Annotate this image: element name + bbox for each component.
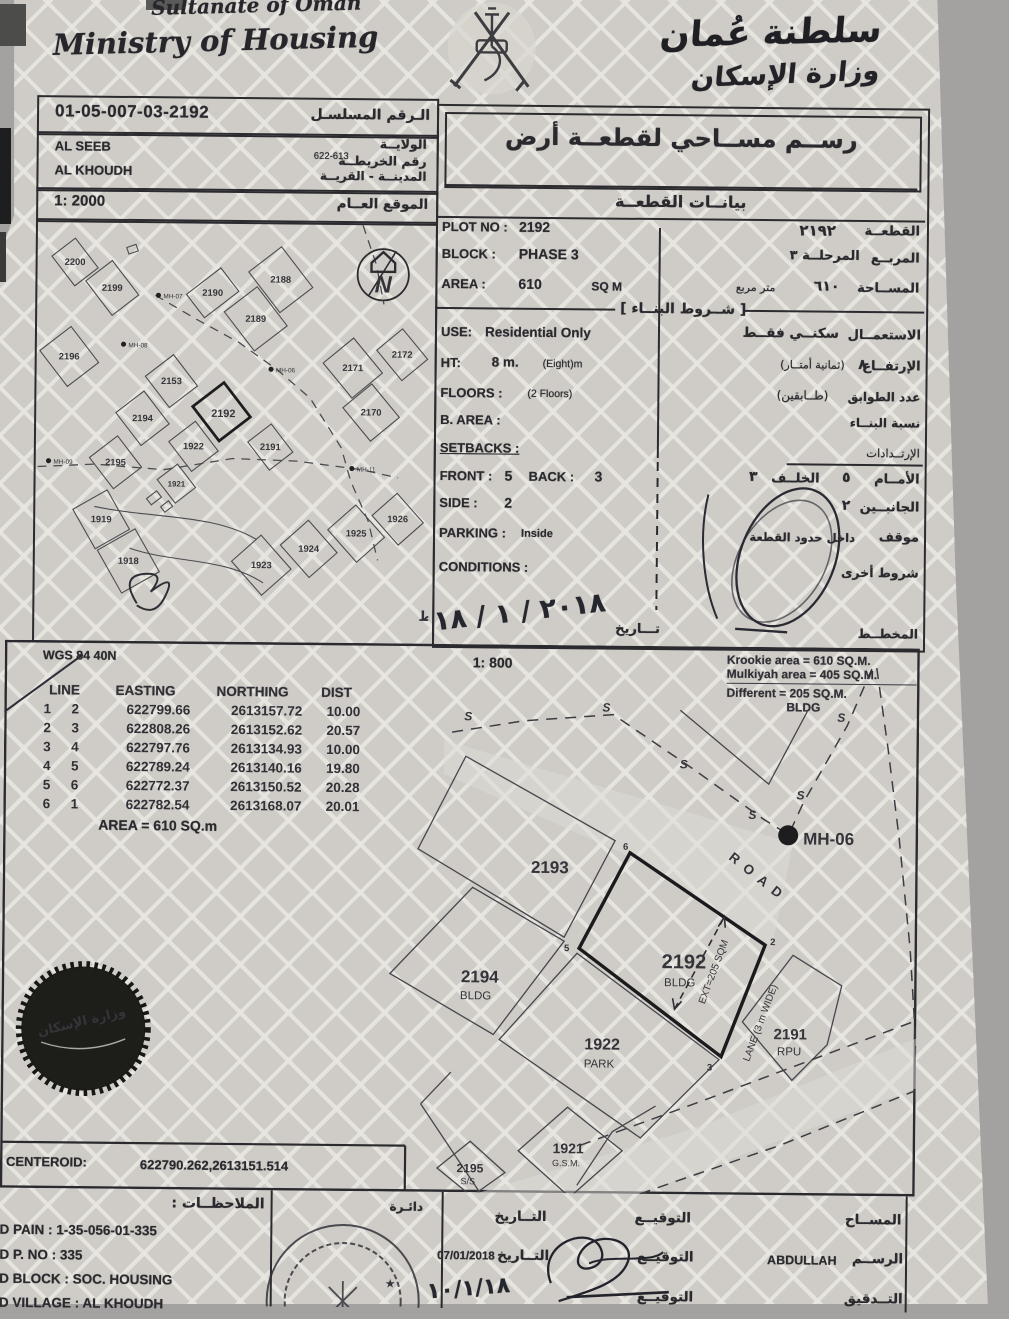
- height-label-ar: الإرتفــاع: [862, 359, 921, 375]
- use-value: Residential Only: [485, 324, 591, 340]
- plot-label: 2199: [102, 283, 123, 293]
- drafter-name: ABDULLAH: [767, 1253, 837, 1268]
- plot-use-label: RPU: [777, 1046, 801, 1058]
- plot-label: 2196: [59, 351, 80, 361]
- map-number-label: رقم الخريطــة: [338, 153, 426, 169]
- survey-scale: 1: 800: [473, 654, 513, 670]
- table-row: 61622782.542613168.0720.01: [33, 794, 363, 816]
- plot-label: 2188: [270, 275, 291, 285]
- manhole-dot: [121, 342, 126, 347]
- manhole-label: MH-11: [357, 467, 376, 474]
- block-label-ar: المربــع: [871, 251, 920, 266]
- front-label-ar: الأمــام: [874, 472, 920, 487]
- back-value: 3: [595, 468, 603, 484]
- header-country-arabic: سلطنة عُمان: [624, 9, 918, 56]
- handwritten-mark: [129, 574, 169, 611]
- area-label: AREA :: [441, 276, 485, 291]
- plot-label: 2194: [461, 967, 500, 986]
- plot-no-label: PLOT NO :: [442, 219, 508, 235]
- mulkiyah-area: Mulkiyah area = 405 SQ.M.: [727, 667, 917, 686]
- stamp-star-icon: ★: [385, 1276, 396, 1290]
- manhole-label: MH-07: [163, 293, 183, 300]
- vertex-label: 2: [770, 937, 775, 948]
- survey-panel: 2193 2192 2194 1922 2191 1921 2195 BLDG …: [0, 640, 920, 1197]
- notes-header: الملاحظــات :: [140, 1195, 265, 1212]
- sewer-mark: S: [464, 709, 472, 723]
- floors-value: (2 Floors): [527, 388, 572, 400]
- coordinate-table: LINE EASTING NORTHING DIST 12622799.6626…: [33, 680, 364, 835]
- plot-use-label: G.S.M.: [552, 1158, 580, 1168]
- village-value: AL KHOUDH: [54, 162, 132, 178]
- plot-label-highlight: 2192: [662, 951, 707, 973]
- handwritten-check-date: ١٠/١/١٨: [426, 1273, 511, 1304]
- floors-value-ar: (طــابقين): [777, 388, 829, 402]
- header-ministry: Ministry of Housing: [52, 20, 378, 62]
- back-label: BACK :: [529, 469, 575, 484]
- surveyor-role: المســاح: [839, 1212, 901, 1229]
- plot-label: 2200: [65, 257, 86, 267]
- floors-label: FLOORS :: [440, 385, 502, 401]
- plot-no-value: 2192: [519, 219, 550, 235]
- area-unit-ar: متر مربع: [736, 281, 776, 294]
- plot-label: 2191: [773, 1026, 807, 1043]
- side-value: 2: [504, 495, 512, 511]
- vertex-label: 3: [707, 1063, 712, 1074]
- note-line: LD VILLAGE : AL KHOUDH: [0, 1295, 163, 1312]
- parking-label: PARKING :: [439, 525, 506, 541]
- plot-label: 1922: [584, 1036, 620, 1053]
- front-label: FRONT :: [440, 468, 493, 484]
- plot-label: 2170: [361, 407, 382, 417]
- plot-value-ar: ٢١٩٢: [799, 221, 836, 239]
- centeroid-value: 622790.262,2613151.514: [140, 1157, 288, 1173]
- plot-label: 1922: [183, 441, 204, 451]
- manhole-label: MH-09: [53, 459, 73, 466]
- area-summary: Krookie area = 610 SQ.M. Mulkiyah area =…: [726, 653, 917, 716]
- oman-emblem: [432, 2, 551, 97]
- plot-use-label: BLDG: [460, 990, 491, 1002]
- area-label-ar: المســاحة: [857, 281, 919, 297]
- plot-use-label: BLDG: [664, 977, 695, 989]
- block-value: PHASE 3: [519, 246, 579, 263]
- date-word: تـــاريخ: [615, 622, 660, 637]
- stamp-emblem-icon: [329, 1281, 357, 1308]
- plot-label: 1925: [346, 528, 367, 538]
- plot-label: 2195: [105, 457, 126, 467]
- height-note-ar: (ثمانية أمتــار): [780, 358, 845, 372]
- height-label: HT:: [441, 355, 461, 370]
- height-value-ar: ٨: [858, 357, 867, 373]
- header-country: Sultanate of Oman: [151, 0, 362, 20]
- plot-label: 2191: [260, 442, 281, 452]
- plot-label: 1924: [298, 544, 320, 554]
- manhole-dot: [349, 466, 354, 471]
- plot-label: 1918: [118, 556, 139, 566]
- plot-label: 2190: [202, 288, 223, 298]
- general-location-label: الموقع العــام: [337, 196, 429, 213]
- svg-text:N: N: [375, 272, 393, 298]
- built-area-label-ar: نسبة البنــاء: [850, 416, 920, 431]
- manhole-dot: [156, 293, 161, 298]
- city-village-label: المدينــة - القريــة: [320, 169, 427, 184]
- sewer-mark: S: [796, 788, 804, 802]
- setbacks-label: SETBACKS :: [440, 440, 520, 456]
- header-ministry-arabic: وزارة الإسكان: [658, 54, 913, 96]
- signature-path: [548, 1237, 629, 1301]
- note-line: LD BLOCK : SOC. HOUSING: [0, 1271, 172, 1288]
- plot-label: 2172: [392, 350, 413, 360]
- bldg-note: BLDG: [726, 700, 916, 716]
- conditions-label: CONDITIONS :: [439, 559, 529, 575]
- wilayat-label: الولايــة: [380, 136, 427, 151]
- manhole-label: MH-06: [803, 829, 854, 848]
- plot-label: 1921: [168, 479, 186, 488]
- area-value-ar: ٦١٠: [814, 279, 840, 295]
- drafter-role: الرســم: [847, 1251, 903, 1268]
- north-symbol-icon: N: [357, 249, 409, 301]
- note-line: LD PAIN : 1-35-056-01-335: [0, 1222, 157, 1239]
- checker-role: التــدقيق: [837, 1291, 903, 1308]
- height-value: 8 m.: [492, 354, 519, 369]
- height-note: (Eight)m: [543, 358, 583, 370]
- plot-label: 1919: [91, 514, 112, 524]
- manhole-label: MH-08: [128, 342, 148, 349]
- location-map: MH-07 MH-08 MH-06 MH-09 MH-11 2200 2199 …: [34, 220, 432, 640]
- manhole-dot: [778, 825, 798, 845]
- plot-label: 1926: [387, 514, 408, 524]
- plot-label-ar: القطعــة: [864, 224, 920, 240]
- plot-label: 2153: [161, 376, 182, 386]
- plot-use-label: S/S: [461, 1176, 476, 1186]
- building-conditions-header: [ شــروط البنــاء ]: [598, 300, 768, 318]
- plot-label: 2171: [342, 363, 363, 373]
- scanned-survey-document: { "header": { "country": "Sultanate of O…: [0, 0, 1009, 1304]
- datum-label: WGS 84 40N: [43, 648, 117, 663]
- sewer-mark: S: [602, 701, 610, 715]
- area-unit: SQ M: [591, 279, 622, 293]
- lane-label: LANE (3 m WIDE): [742, 983, 781, 1063]
- plot-label: 2193: [531, 858, 569, 877]
- signature-scribble: [529, 1221, 680, 1310]
- sewer-mark: S: [748, 808, 756, 822]
- setbacks-label-ar: الإرتــدادات: [866, 446, 920, 461]
- plot-label: 1921: [553, 1140, 585, 1156]
- note-line: LD P. NO : 335: [0, 1247, 82, 1263]
- manhole-dot: [268, 367, 273, 372]
- block-value-ar: المرحلــة ٣: [790, 248, 860, 264]
- serial-number: 01-05-007-03-2192: [55, 101, 209, 122]
- side-label: SIDE :: [439, 495, 477, 510]
- stamp-partial-text: دائـرة: [390, 1200, 424, 1214]
- plot-use-label: PARK: [584, 1058, 615, 1070]
- vertex-label: 6: [623, 842, 628, 853]
- centeroid-label: CENTEROID:: [6, 1154, 87, 1170]
- serial-label: الـرقم المسلسـل: [310, 107, 430, 124]
- plot-label: 2195: [457, 1161, 484, 1175]
- use-label: USE:: [441, 324, 472, 339]
- handwritten-circle: [695, 476, 877, 648]
- plot-label: 1923: [251, 560, 272, 570]
- use-value-ar: سكنــي فقــط: [742, 325, 839, 342]
- use-label-ar: الاستعمــال: [848, 328, 921, 344]
- panel-title: رســم مســاحي لقطعــة أرض: [445, 122, 918, 155]
- manhole-dot: [46, 458, 51, 463]
- plot-label-highlight: 2192: [211, 408, 235, 420]
- manhole-label: MH-06: [276, 367, 296, 374]
- front-value: 5: [505, 468, 513, 484]
- ministry-seal: وزارة الإسكان: [19, 964, 148, 1093]
- official-stamp: ★: [257, 1194, 453, 1308]
- sewer-mark: S: [680, 757, 688, 771]
- floors-label-ar: عدد الطوابق: [848, 390, 921, 405]
- drafter-date: 07/01/2018: [437, 1250, 495, 1263]
- area-note: AREA = 610 SQ.m: [98, 817, 363, 836]
- block-label: BLOCK :: [442, 246, 496, 262]
- parking-label-ar: موقف: [879, 530, 919, 545]
- plot-label: 2194: [132, 413, 154, 423]
- vertex-label: 5: [564, 943, 570, 954]
- built-area-label: B. AREA :: [440, 412, 501, 428]
- area-value: 610: [518, 276, 542, 292]
- different-area: Different = 205 SQ.M.: [726, 684, 916, 702]
- wilayat-value: AL SEEB: [55, 138, 111, 154]
- general-scale: 1: 2000: [54, 192, 105, 209]
- parking-value: Inside: [521, 528, 553, 540]
- plot-label: 2189: [245, 314, 266, 324]
